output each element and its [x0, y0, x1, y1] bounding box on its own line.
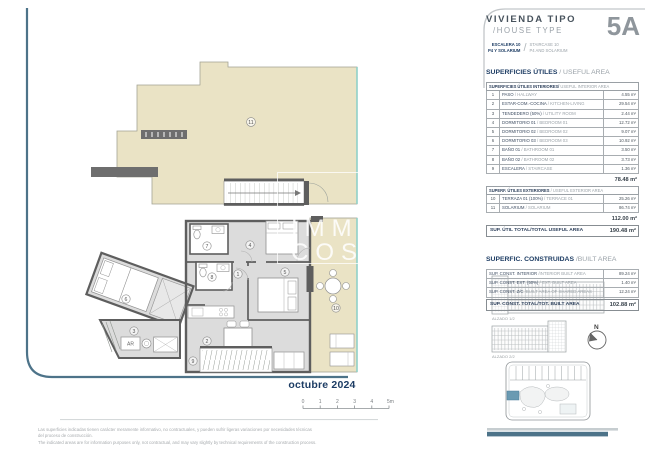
room-label: 1 [234, 270, 242, 278]
area-row: 10TERRAZA 01 (100%) / TERRACE 0125.26 m² [487, 194, 639, 203]
svg-text:9: 9 [192, 359, 195, 365]
row-number: 1 [487, 91, 500, 100]
room-label: 8 [208, 273, 216, 281]
row-number: 5 [487, 127, 500, 136]
row-number: 8 [487, 155, 500, 164]
room-label: 4 [246, 241, 254, 249]
kitchen-sink [192, 308, 203, 316]
row-label: ESCALERA / STAIRCASE [500, 164, 604, 173]
built-area-section-header: SUPERFIC. CONSTRUIDAS /BUILT AREA [486, 248, 640, 266]
solarium: 11 [91, 62, 357, 206]
bedroom-1 [266, 221, 298, 254]
area-row: 11SOLARIUM / SOLARIUM86.74 m² [487, 204, 639, 213]
sun-lounger [330, 334, 354, 348]
toilet [200, 268, 206, 277]
svg-text:ALZADO 2/2: ALZADO 2/2 [492, 354, 515, 359]
footer-divider [60, 419, 378, 420]
area-row: 4DORMITORIO 01 / BEDROOM 0112.72 m² [487, 118, 639, 127]
sink [212, 226, 224, 234]
svg-text:1: 1 [237, 272, 240, 278]
area-row: 3TENDEDERO (50%) / UTILITY ROOM2.44 m² [487, 109, 639, 118]
row-value: 25.26 m² [604, 194, 639, 203]
row-number: 9 [487, 164, 500, 173]
row-label: ESTAR-COM.-COCINA / KITCHEN-LIVING [500, 100, 604, 109]
area-row: 9ESCALERA / STAIRCASE1.36 m² [487, 164, 639, 173]
row-label: DORMITORIO 01 / BEDROOM 01 [500, 118, 604, 127]
row-value: 9.07 m² [604, 127, 639, 136]
scale-bar: 0 1 2 3 4 5m [302, 399, 394, 409]
room-label: 6 [122, 295, 130, 303]
apartment-plan: AR [86, 216, 357, 372]
built-grand-total: SUP. CONST. TOTAL/TOT. BUILT AREA 102.88… [486, 299, 639, 311]
title-block: VIVIENDA TIPO /HOUSE TYPE 5A [486, 14, 640, 39]
elevation-2: ALZADO 2/2 [492, 321, 566, 359]
row-label: SOLARIUM / SOLARIUM [500, 204, 604, 213]
sun-lounger [330, 352, 354, 366]
room-label: 2 [203, 337, 211, 345]
room-label: 11 [247, 118, 256, 127]
house-type-code: 5A [607, 14, 640, 39]
table-header: SUPERFICIES ÚTILES INTERIORES/ USEFUL IN… [487, 82, 639, 90]
svg-text:AR: AR [127, 342, 134, 348]
disclaimer-en: The indicated areas are for information … [38, 440, 613, 446]
row-number: 4 [487, 118, 500, 127]
row-value: 1.40 m² [604, 279, 639, 288]
room-label: 10 [332, 304, 340, 312]
terrace [310, 218, 357, 372]
row-number: 3 [487, 109, 500, 118]
planter [91, 167, 158, 177]
svg-text:1: 1 [319, 399, 322, 405]
row-label: TENDEDERO (50%) / UTILITY ROOM [500, 109, 604, 118]
row-value: 1.36 m² [604, 164, 639, 173]
subtitle-es-line2: P4 Y SOLARIUM [488, 48, 520, 54]
row-label: SUP. CONST. Z/C /BUILT AREA OF SHARED AR… [487, 288, 604, 297]
area-row: 8BAÑO 02 / BATHROOM 023.73 m² [487, 155, 639, 164]
area-row: 6DORMITORIO 03 / BEDROOM 0310.92 m² [487, 137, 639, 146]
svg-text:5: 5 [284, 270, 287, 276]
row-label: SUP. CONST. EXT. (50%) / EXT. BUILT AREA [487, 279, 604, 288]
svg-text:2: 2 [336, 399, 339, 405]
area-row: SUP. CONST. INTERIOR /INTERIOR BUILT ARE… [487, 269, 639, 278]
row-value: 2.44 m² [604, 109, 639, 118]
info-panel: VIVIENDA TIPO /HOUSE TYPE 5A ESCALERA 10… [486, 14, 640, 311]
svg-text:10: 10 [333, 306, 339, 312]
useful-interior-table: SUPERFICIES ÚTILES INTERIORES/ USEFUL IN… [486, 82, 639, 174]
svg-text:3: 3 [353, 399, 356, 405]
svg-text:4: 4 [370, 399, 373, 405]
row-label: TERRAZA 01 (100%) / TERRACE 01 [500, 194, 604, 203]
row-label: SUP. CONST. INTERIOR /INTERIOR BUILT ARE… [487, 269, 604, 278]
area-row: 1PASO / HALLWAY4.55 m² [487, 91, 639, 100]
sofa [274, 352, 304, 369]
utility-room: AR [100, 320, 180, 358]
row-label: DORMITORIO 02 / BEDROOM 02 [500, 127, 604, 136]
svg-text:8: 8 [211, 275, 214, 281]
row-value: 29.54 m² [604, 100, 639, 109]
room-label: 7 [203, 242, 211, 250]
svg-text:5m: 5m [387, 399, 394, 405]
useful-area-section-header: SUPERFICIES ÚTILES / USEFUL AREA [486, 61, 640, 79]
row-label: PASO / HALLWAY [500, 91, 604, 100]
row-value: 12.72 m² [604, 118, 639, 127]
plan-date: octubre 2024 [262, 379, 382, 391]
svg-text:3: 3 [133, 329, 136, 335]
terrace-table [325, 278, 341, 294]
wall-pier [307, 266, 314, 292]
area-row: SUP. CONST. Z/C /BUILT AREA OF SHARED AR… [487, 288, 639, 297]
apartment-staircase [200, 346, 272, 372]
bedroom-2 [258, 278, 298, 312]
svg-text:N: N [594, 324, 599, 331]
area-row: 2ESTAR-COM.-COCINA / KITCHEN-LIVING29.54… [487, 100, 639, 109]
north-compass-icon: N [588, 324, 606, 349]
row-value: 12.24 m² [604, 288, 639, 297]
svg-text:4: 4 [249, 243, 252, 249]
toilet [194, 230, 200, 239]
house-type-title-es: VIVIENDA TIPO [486, 14, 605, 25]
svg-text:2: 2 [206, 339, 209, 345]
row-label: DORMITORIO 03 / BEDROOM 03 [500, 137, 604, 146]
area-row: 5DORMITORIO 02 / BEDROOM 029.07 m² [487, 127, 639, 136]
row-number: 2 [487, 100, 500, 109]
row-number: 10 [487, 194, 500, 203]
title-subtitle: ESCALERA 10 P4 Y SOLARIUM / STAIRCASE 10… [488, 42, 640, 54]
useful-exterior-table: SUPERF. ÚTILES EXTERIORES / USEFUL EXTER… [486, 186, 639, 214]
disclaimer-es-line2: del proceso de construcción. [38, 433, 613, 439]
svg-text:ALZADO 1/2: ALZADO 1/2 [492, 316, 515, 321]
washing-machine [142, 339, 151, 348]
row-value: 86.74 m² [604, 204, 639, 213]
subtitle-es-line1: ESCALERA 10 [488, 42, 520, 48]
exterior-total: 112.00 m² [486, 213, 639, 224]
svg-text:11: 11 [248, 120, 253, 126]
row-value: 3.73 m² [604, 155, 639, 164]
row-value: 89.24 m² [604, 269, 639, 278]
row-number: 11 [487, 204, 500, 213]
row-value: 4.55 m² [604, 91, 639, 100]
unit-highlight [507, 391, 519, 400]
area-row: 7BAÑO 01 / BATHROOM 013.50 m² [487, 146, 639, 155]
built-area-table: SUP. CONST. INTERIOR /INTERIOR BUILT ARE… [486, 269, 639, 298]
subtitle-en-line2: P4 AND SOLARIUM [530, 48, 568, 54]
house-type-title-en: /HOUSE TYPE [493, 26, 605, 35]
svg-text:7: 7 [206, 244, 209, 250]
disclaimer: Las superficies indicadas tienen carácte… [38, 427, 613, 445]
row-label: BAÑO 01 / BATHROOM 01 [500, 146, 604, 155]
site-plan [506, 362, 590, 420]
row-number: 7 [487, 146, 500, 155]
row-value: 10.92 m² [604, 137, 639, 146]
bedroom-wing [86, 253, 193, 328]
row-number: 6 [487, 137, 500, 146]
area-row: SUP. CONST. EXT. (50%) / EXT. BUILT AREA… [487, 279, 639, 288]
table-header: SUPERF. ÚTILES EXTERIORES / USEFUL EXTER… [487, 186, 639, 194]
svg-text:6: 6 [125, 297, 128, 303]
room-label: 5 [281, 268, 289, 276]
row-value: 3.50 m² [604, 146, 639, 155]
subtitle-slash: / [523, 42, 526, 54]
interior-total: 78.48 m² [486, 174, 639, 185]
svg-text:0: 0 [302, 399, 305, 405]
row-label: BAÑO 02 / BATHROOM 02 [500, 155, 604, 164]
sink [217, 264, 229, 272]
room-label: 9 [189, 357, 197, 365]
plan-sheet: 11 [0, 0, 645, 451]
useful-grand-total: SUP. ÚTIL TOTAL/TOTAL USEFUL AREA 190.48… [486, 225, 639, 237]
room-label: 3 [130, 327, 138, 335]
